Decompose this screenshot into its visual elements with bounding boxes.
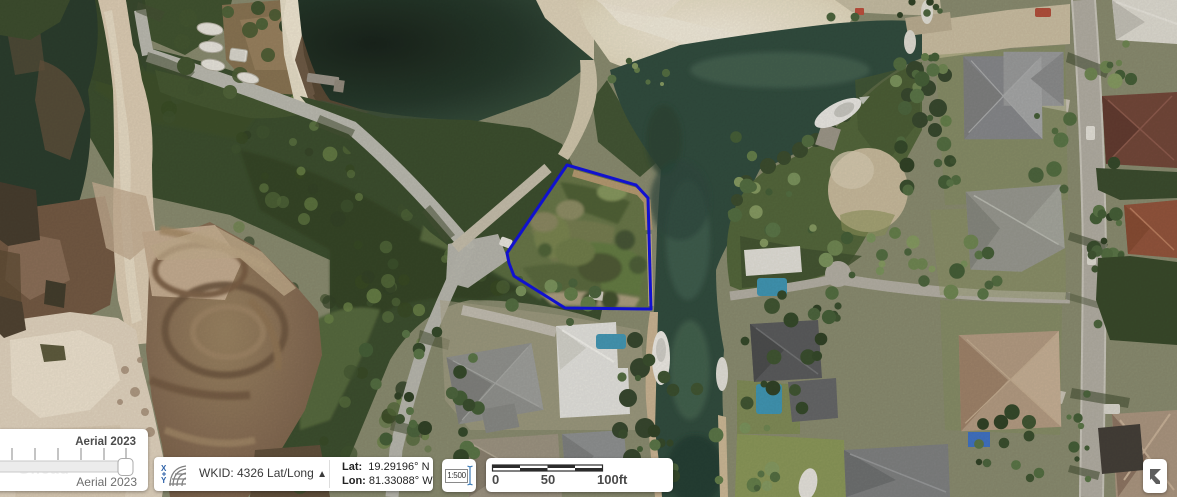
- svg-text:100ft: 100ft: [597, 472, 628, 487]
- svg-text:0: 0: [492, 472, 499, 487]
- svg-text:50: 50: [541, 472, 555, 487]
- svg-text:X: X: [161, 464, 167, 473]
- svg-text:Y: Y: [161, 476, 167, 485]
